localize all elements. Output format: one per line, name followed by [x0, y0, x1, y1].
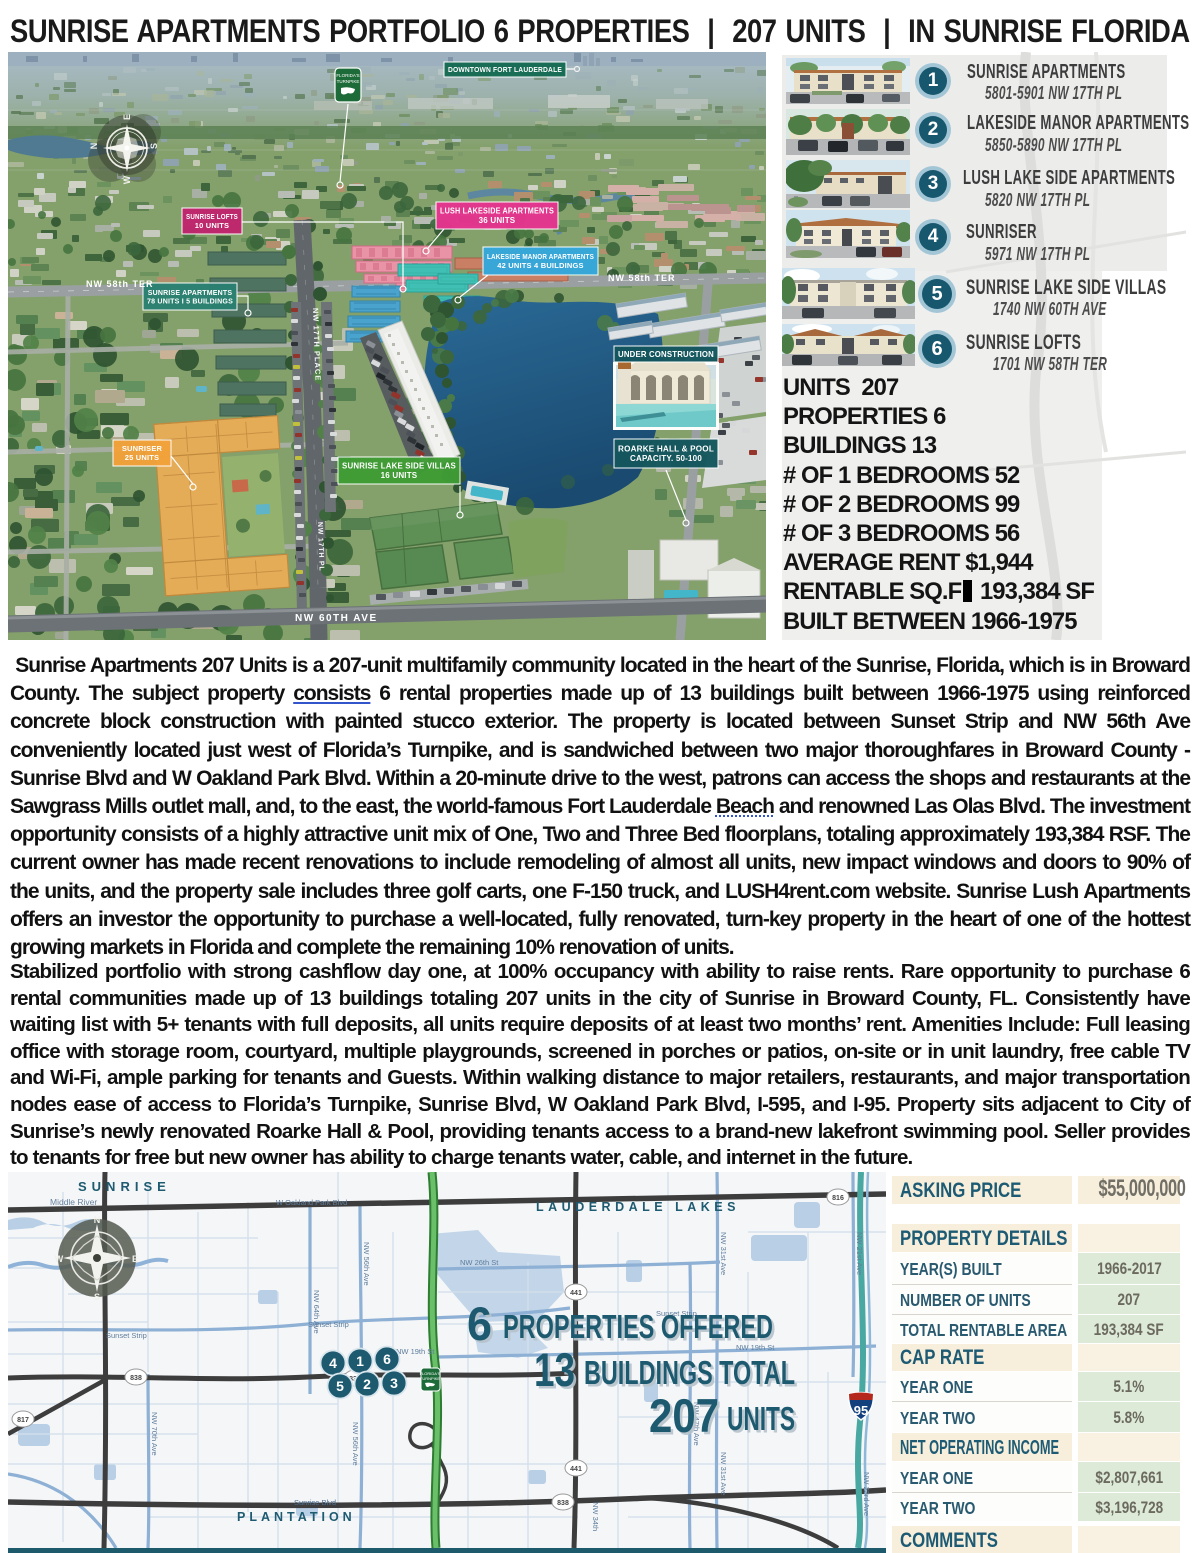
svg-text:SUNRISE: SUNRISE: [78, 1179, 171, 1194]
svg-text:TURNPIKE: TURNPIKE: [420, 1376, 441, 1381]
svg-text:817: 817: [17, 1417, 29, 1424]
svg-text:ROARKE HALL & POOL: ROARKE HALL & POOL: [618, 445, 714, 454]
svg-text:25 UNITS: 25 UNITS: [125, 453, 160, 462]
svg-text:NW 56th Ave: NW 56th Ave: [362, 1242, 371, 1286]
svg-text:3: 3: [390, 1375, 398, 1391]
svg-text:NW 58th TER: NW 58th TER: [86, 279, 154, 289]
svg-text:N: N: [89, 143, 99, 150]
svg-text:LUSH LAKESIDE APARTMENTS: LUSH LAKESIDE APARTMENTS: [440, 207, 554, 216]
svg-text:BUILDINGS TOTAL: BUILDINGS TOTAL: [584, 1354, 795, 1391]
svg-text:NW 23rd Ave: NW 23rd Ave: [862, 1472, 871, 1516]
svg-text:NW 58th TER: NW 58th TER: [608, 273, 676, 283]
svg-text:1: 1: [356, 1353, 364, 1369]
svg-text:S: S: [94, 1292, 100, 1302]
svg-text:E: E: [132, 1254, 138, 1264]
svg-text:SUNRISE LOFTS: SUNRISE LOFTS: [186, 212, 238, 221]
svg-text:NW 56th Ave: NW 56th Ave: [351, 1422, 360, 1466]
svg-text:N: N: [94, 1215, 101, 1225]
svg-text:Sunset Strip: Sunset Strip: [106, 1331, 147, 1340]
svg-text:838: 838: [557, 1500, 569, 1507]
svg-text:LAKESIDE MANOR APARTMENTS: LAKESIDE MANOR APARTMENTS: [487, 252, 594, 261]
svg-text:NW 64th Ave: NW 64th Ave: [312, 1290, 321, 1334]
svg-text:NW 31st Ave: NW 31st Ave: [719, 1232, 728, 1275]
svg-text:UNDER CONSTRUCTION: UNDER CONSTRUCTION: [618, 349, 714, 359]
svg-text:78 UNITS I 5 BUILDINGS: 78 UNITS I 5 BUILDINGS: [147, 298, 233, 305]
svg-text:10 UNITS: 10 UNITS: [195, 221, 230, 230]
svg-text:838: 838: [130, 1375, 142, 1382]
svg-text:S: S: [149, 143, 159, 149]
svg-text:E: E: [122, 114, 132, 120]
svg-text:Sunrise Blvd: Sunrise Blvd: [294, 1498, 336, 1507]
svg-text:PLANTATION: PLANTATION: [237, 1510, 356, 1524]
svg-text:NW 26th St: NW 26th St: [460, 1258, 499, 1267]
svg-text:NW 34th: NW 34th: [591, 1502, 600, 1531]
svg-text:441: 441: [570, 1466, 582, 1473]
svg-text:95: 95: [854, 1403, 868, 1418]
svg-text:13: 13: [534, 1343, 575, 1396]
svg-text:W: W: [122, 175, 132, 184]
svg-text:NW 31st Ave: NW 31st Ave: [719, 1452, 728, 1495]
svg-text:NW 70th Ave: NW 70th Ave: [150, 1412, 159, 1456]
svg-text:PROPERTIES OFFERED: PROPERTIES OFFERED: [503, 1308, 773, 1345]
svg-text:816: 816: [832, 1195, 844, 1202]
svg-text:CAPACITY. 50-100: CAPACITY. 50-100: [630, 454, 702, 463]
svg-text:NW 21st Ave: NW 21st Ave: [855, 1232, 864, 1275]
svg-text:UNITS: UNITS: [727, 1400, 795, 1437]
svg-text:SUNRISE APARTMENTS: SUNRISE APARTMENTS: [148, 290, 233, 297]
svg-text:16 UNITS: 16 UNITS: [381, 471, 418, 480]
svg-text:FLORIDA'S: FLORIDA'S: [336, 73, 359, 78]
svg-text:W Oakland Park Blvd: W Oakland Park Blvd: [276, 1198, 347, 1207]
svg-text:207: 207: [649, 1389, 719, 1442]
svg-text:NW 19th St: NW 19th St: [396, 1347, 435, 1356]
svg-text:NW 60TH AVE: NW 60TH AVE: [295, 613, 378, 624]
svg-text:W: W: [55, 1254, 64, 1264]
svg-text:5: 5: [336, 1378, 344, 1394]
svg-text:SUNRISER: SUNRISER: [122, 444, 163, 453]
svg-text:LAUDERDALE LAKES: LAUDERDALE LAKES: [536, 1200, 740, 1214]
svg-text:6: 6: [383, 1351, 391, 1367]
svg-text:SUNRISE LAKE SIDE VILLAS: SUNRISE LAKE SIDE VILLAS: [342, 462, 456, 471]
svg-text:4: 4: [329, 1355, 337, 1371]
svg-text:DOWNTOWN FORT LAUDERDALE: DOWNTOWN FORT LAUDERDALE: [448, 65, 562, 74]
svg-text:2: 2: [363, 1376, 371, 1392]
svg-text:TURNPIKE: TURNPIKE: [337, 79, 360, 84]
svg-text:42 UNITS 4 BUILDINGS: 42 UNITS 4 BUILDINGS: [497, 261, 584, 270]
svg-text:36 UNITS: 36 UNITS: [479, 216, 516, 225]
svg-text:Middle River: Middle River: [50, 1197, 97, 1207]
svg-text:6: 6: [467, 1297, 492, 1350]
svg-text:441: 441: [570, 1290, 582, 1297]
